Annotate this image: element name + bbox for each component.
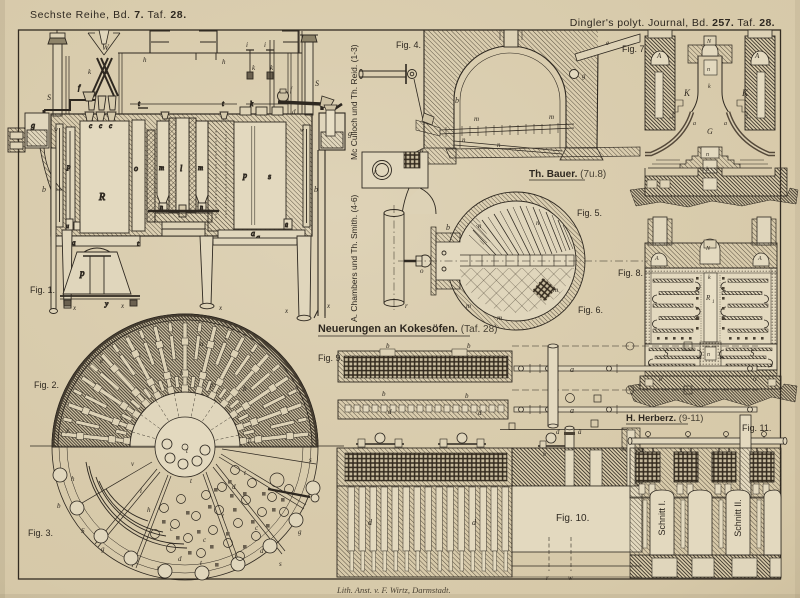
svg-text:p: p	[242, 171, 247, 180]
svg-text:g: g	[298, 528, 302, 536]
svg-text:R: R	[98, 192, 105, 203]
svg-text:r: r	[157, 564, 160, 572]
svg-text:m: m	[553, 286, 558, 294]
svg-text:Fig. 8.: Fig. 8.	[618, 268, 643, 278]
svg-text:w: w	[54, 127, 58, 133]
svg-text:b: b	[446, 223, 450, 232]
svg-text:S: S	[47, 93, 51, 102]
svg-text:Fig. 3.: Fig. 3.	[28, 528, 53, 538]
svg-text:h: h	[222, 58, 226, 66]
svg-text:A. Chambers und Th. Smith. (4-: A. Chambers und Th. Smith. (4-6)	[349, 194, 359, 322]
svg-text:A: A	[757, 256, 762, 262]
svg-text:e: e	[100, 357, 103, 365]
svg-text:b: b	[467, 342, 471, 350]
svg-text:w: w	[300, 128, 304, 134]
svg-text:Fig. 5.: Fig. 5.	[577, 208, 602, 218]
svg-text:ü: ü	[285, 223, 288, 229]
svg-text:K: K	[683, 88, 691, 98]
svg-text:Mc Culloch und Th. Reid. (1-3): Mc Culloch und Th. Reid. (1-3)	[349, 44, 359, 160]
svg-text:b: b	[42, 185, 46, 194]
svg-text:s: s	[279, 560, 282, 568]
svg-text:b: b	[57, 502, 61, 510]
svg-text:p: p	[209, 381, 214, 389]
svg-text:m: m	[549, 113, 554, 121]
svg-text:n: n	[462, 136, 466, 144]
svg-text:p: p	[66, 163, 71, 171]
svg-text:m: m	[474, 115, 479, 123]
svg-text:s: s	[268, 172, 271, 181]
svg-text:m: m	[198, 164, 203, 172]
svg-text:b: b	[465, 392, 469, 400]
svg-text:b: b	[386, 342, 390, 350]
svg-text:b: b	[455, 96, 459, 105]
svg-text:A: A	[656, 52, 662, 60]
svg-text:m: m	[159, 164, 164, 172]
svg-text:i: i	[140, 487, 142, 495]
svg-text:Fig. 9.: Fig. 9.	[318, 353, 343, 363]
svg-text:Fig. 1.: Fig. 1.	[30, 285, 55, 295]
svg-text:Fig. 11.: Fig. 11.	[742, 423, 771, 433]
svg-text:y: y	[104, 299, 109, 308]
svg-text:r: r	[374, 168, 377, 176]
svg-text:k: k	[708, 84, 711, 90]
svg-text:d: d	[388, 408, 392, 416]
svg-text:Neuerungen an Kokesöfen. (Taf.: Neuerungen an Kokesöfen. (Taf. 28)	[318, 323, 497, 335]
svg-text:Fig. 2.: Fig. 2.	[34, 380, 59, 390]
svg-text:u: u	[200, 340, 204, 348]
svg-text:k: k	[708, 275, 711, 281]
svg-text:Schnitt II.: Schnitt II.	[733, 499, 743, 537]
svg-text:n: n	[707, 352, 710, 358]
svg-text:u: u	[66, 224, 69, 230]
svg-text:K: K	[741, 88, 749, 98]
svg-text:o: o	[134, 164, 138, 173]
svg-text:s: s	[309, 456, 312, 464]
svg-text:Fig. 7.: Fig. 7.	[622, 44, 647, 54]
svg-text:p: p	[247, 436, 252, 444]
svg-text:a: a	[724, 121, 727, 127]
svg-text:1: 1	[712, 300, 715, 305]
svg-text:h: h	[71, 475, 75, 483]
svg-text:Lith. Anst. v. F. Wirtz, Darms: Lith. Anst. v. F. Wirtz, Darmstadt.	[336, 585, 451, 595]
svg-text:n: n	[706, 152, 709, 158]
svg-text:Schnitt I.: Schnitt I.	[657, 500, 667, 535]
svg-text:a: a	[251, 229, 255, 238]
svg-text:H. Herberz. (9-11): H. Herberz. (9-11)	[626, 413, 703, 424]
svg-text:g: g	[582, 72, 586, 80]
svg-text:Sechste Reihe, Bd. 7. Taf. 28.: Sechste Reihe, Bd. 7. Taf. 28.	[30, 9, 187, 21]
svg-text:Dingler's polyt. Journal, Bd.: Dingler's polyt. Journal, Bd. 257. Taf. …	[570, 17, 775, 29]
svg-text:p: p	[79, 268, 85, 278]
svg-text:R: R	[705, 294, 711, 302]
svg-text:i: i	[264, 41, 266, 49]
svg-text:h: h	[143, 56, 147, 64]
svg-text:w: w	[568, 574, 573, 582]
svg-text:S: S	[750, 348, 755, 358]
svg-text:a: a	[693, 121, 696, 127]
svg-text:S: S	[664, 348, 669, 358]
svg-text:S: S	[81, 527, 85, 535]
svg-text:a: a	[570, 365, 574, 374]
svg-text:ä: ä	[578, 428, 582, 436]
svg-text:n: n	[536, 219, 540, 227]
svg-text:b: b	[314, 185, 318, 194]
svg-text:g: g	[31, 121, 35, 130]
svg-text:r: r	[546, 574, 549, 582]
svg-text:i: i	[246, 41, 248, 49]
svg-text:d: d	[232, 483, 236, 491]
svg-text:d: d	[478, 409, 482, 417]
svg-text:S: S	[315, 79, 319, 88]
svg-text:a: a	[570, 406, 574, 415]
svg-text:m: m	[497, 314, 502, 322]
svg-text:m: m	[466, 302, 471, 310]
svg-text:b: b	[382, 390, 386, 398]
svg-text:Fig. 6.: Fig. 6.	[578, 305, 603, 315]
svg-text:a: a	[72, 239, 76, 247]
svg-text:A: A	[754, 52, 760, 60]
svg-text:r: r	[405, 302, 408, 310]
svg-text:Th. Bauer. (7u.8): Th. Bauer. (7u.8)	[529, 169, 606, 180]
svg-text:b: b	[243, 385, 247, 393]
svg-text:g: g	[101, 545, 105, 553]
svg-text:n: n	[707, 67, 710, 73]
svg-text:d: d	[260, 547, 264, 555]
svg-text:h: h	[147, 506, 151, 514]
svg-text:o: o	[420, 267, 424, 275]
svg-text:n: n	[497, 141, 501, 149]
svg-text:G: G	[707, 127, 713, 136]
svg-text:Fig. 10.: Fig. 10.	[556, 513, 589, 524]
svg-text:n: n	[478, 222, 482, 230]
svg-text:d: d	[556, 428, 560, 436]
svg-text:A: A	[654, 256, 659, 262]
svg-text:h: h	[180, 369, 184, 377]
svg-text:d: d	[178, 555, 182, 563]
svg-text:Fig. 4.: Fig. 4.	[396, 40, 421, 50]
svg-text:e: e	[606, 39, 609, 47]
